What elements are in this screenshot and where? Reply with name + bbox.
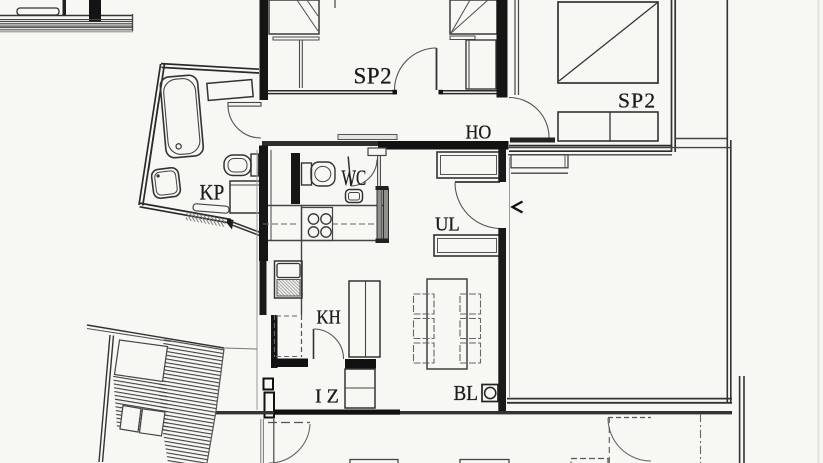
svg-text:SP2: SP2 — [618, 89, 656, 113]
svg-text:KP: KP — [200, 181, 225, 204]
svg-text:UL: UL — [435, 214, 460, 236]
svg-text:HO: HO — [466, 121, 492, 143]
svg-text:KH: KH — [317, 306, 341, 329]
svg-text:BL: BL — [454, 382, 478, 405]
svg-text:IZ: IZ — [315, 386, 344, 408]
svg-text:SP2: SP2 — [354, 64, 393, 89]
svg-text:WC: WC — [342, 166, 367, 190]
